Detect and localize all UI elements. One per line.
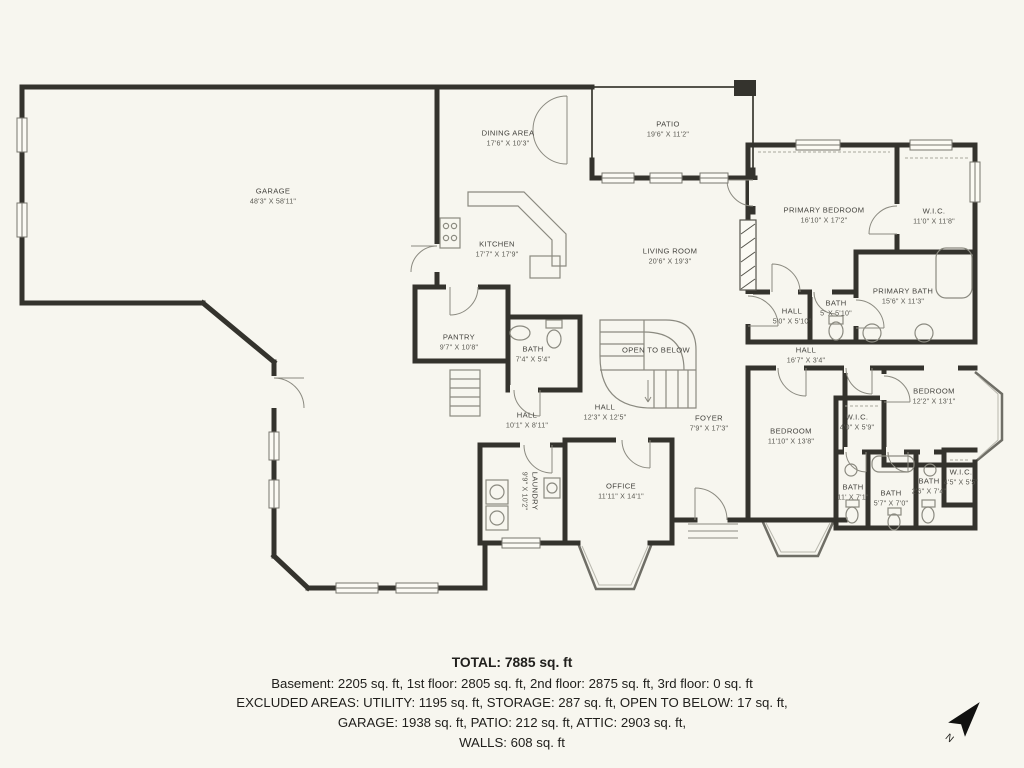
porch-steps — [688, 524, 738, 538]
bay-windows — [578, 372, 1002, 589]
excluded-areas-text: EXCLUDED AREAS: UTILITY: 1195 sq. ft, ST… — [0, 693, 1024, 713]
floor-plan-canvas: N GARAGE48'3" X 58'11" DINING AREA17'6" … — [0, 0, 1024, 768]
patio-corner-post — [734, 80, 756, 96]
kitchen-counter — [440, 192, 566, 278]
fireplace — [740, 220, 756, 290]
area-summary: TOTAL: 7885 sq. ft Basement: 2205 sq. ft… — [0, 653, 1024, 753]
total-area-text: TOTAL: 7885 sq. ft — [0, 653, 1024, 674]
walls — [22, 87, 975, 588]
laundry-fixtures — [486, 478, 560, 530]
closet-rails — [758, 152, 970, 460]
floor-areas-text: Basement: 2205 sq. ft, 1st floor: 2805 s… — [0, 674, 1024, 694]
small-staircase — [450, 370, 480, 416]
patio-outline — [592, 87, 753, 178]
door-openings — [270, 180, 958, 457]
stair-run-line — [645, 380, 651, 402]
excluded-areas-text-2: GARAGE: 1938 sq. ft, PATIO: 212 sq. ft, … — [0, 713, 1024, 733]
walls-area-text: WALLS: 608 sq. ft — [0, 733, 1024, 753]
